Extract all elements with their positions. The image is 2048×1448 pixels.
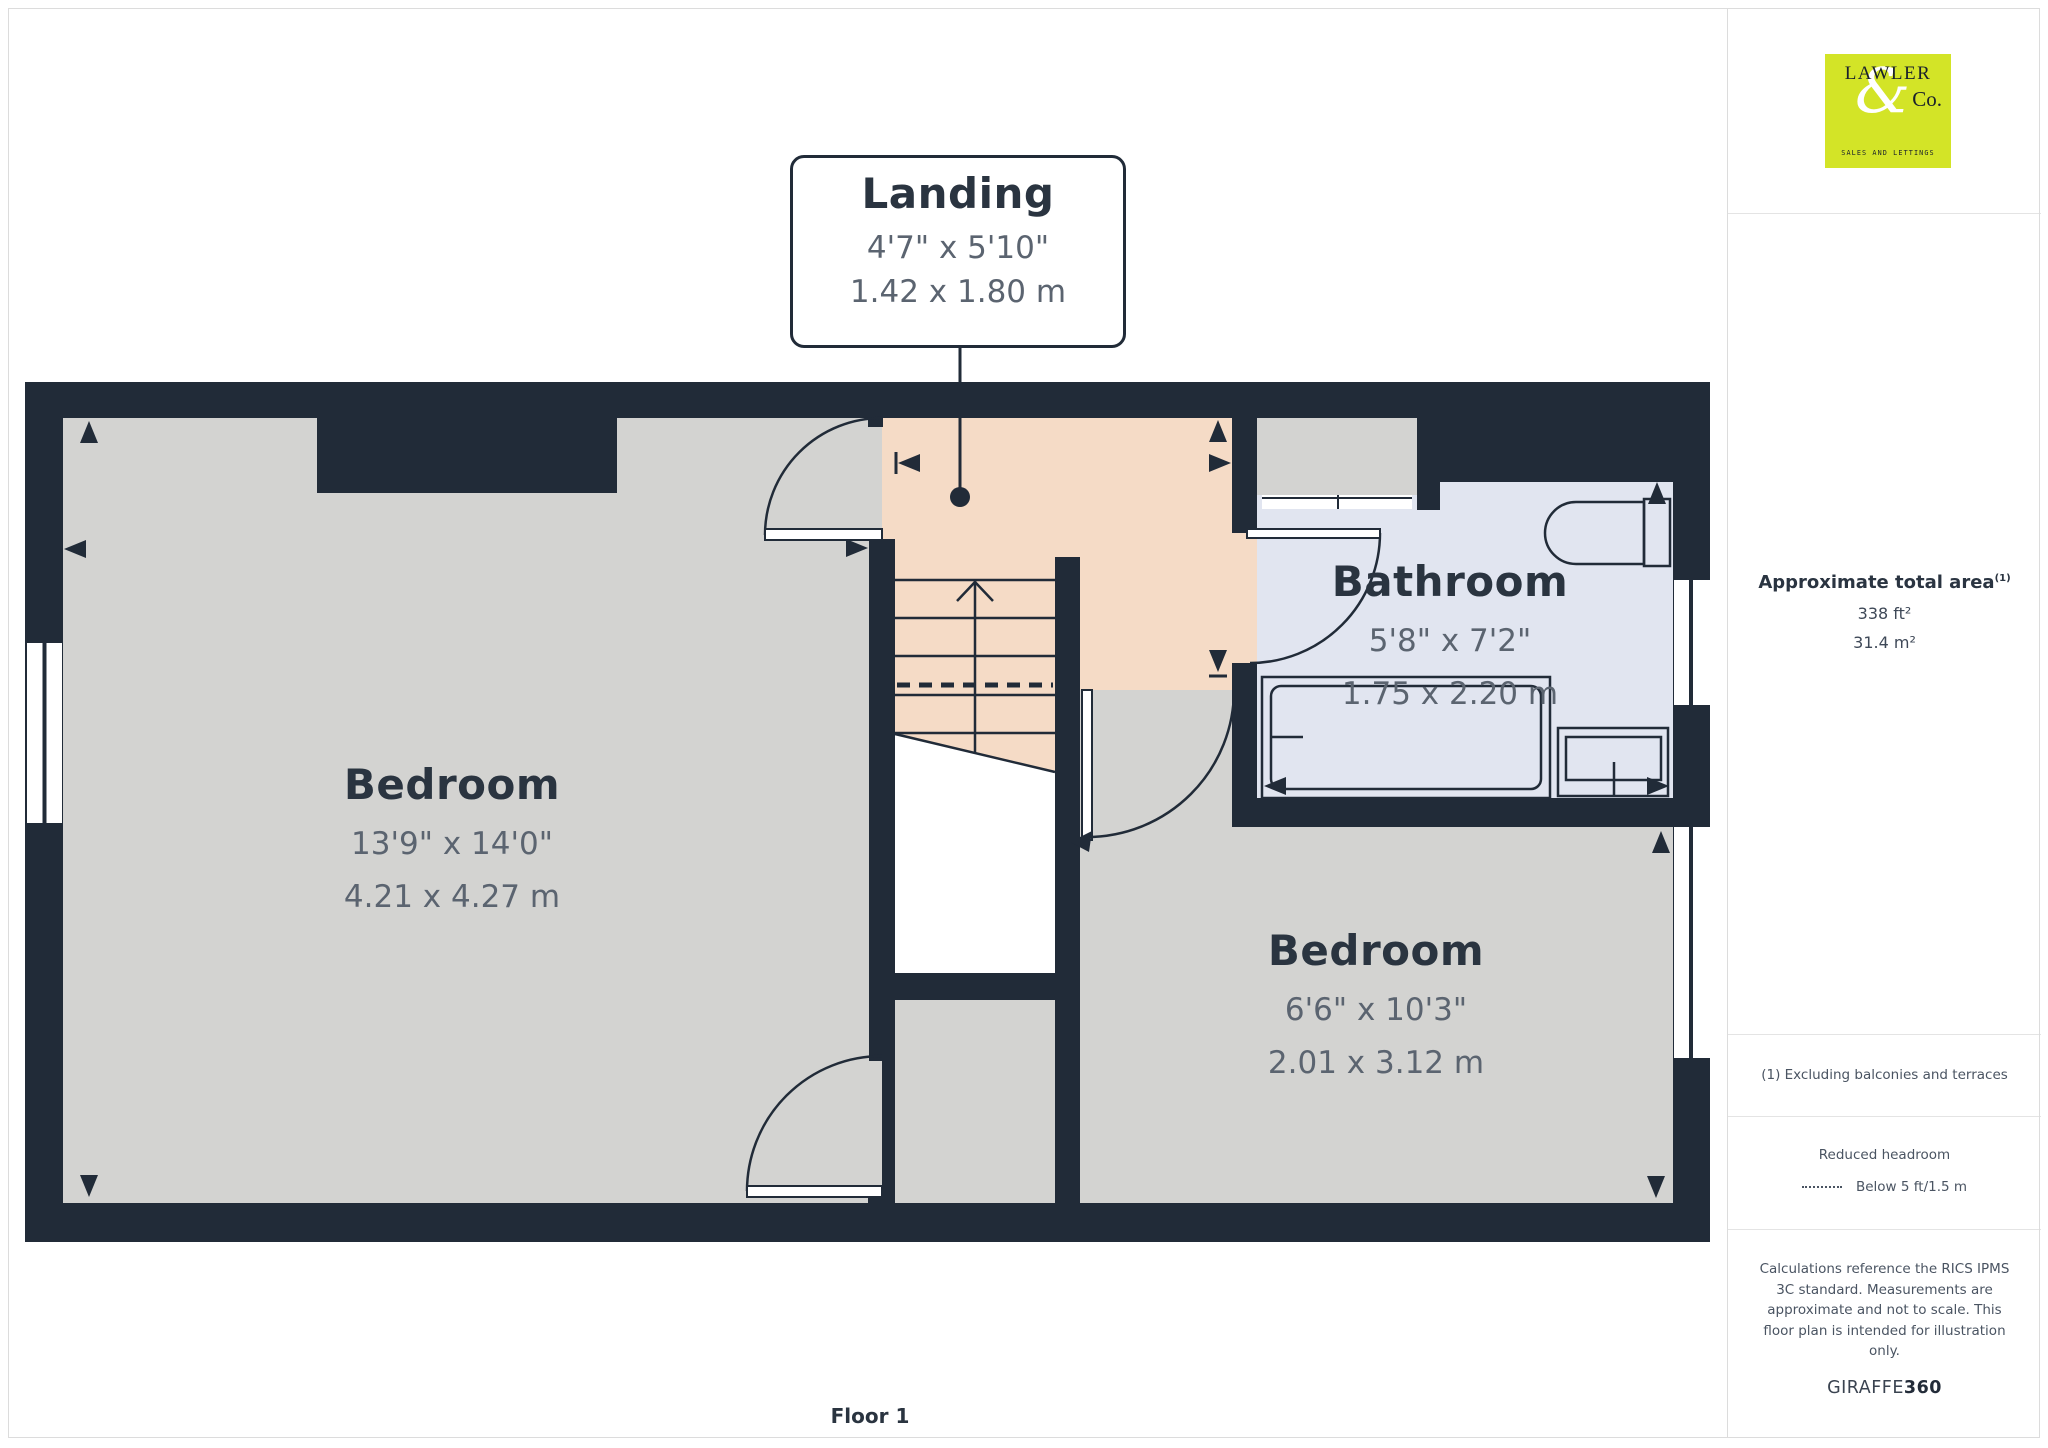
reduced-headroom-legend-row: Below 5 ft/1.5 m	[1728, 1179, 2041, 1195]
bathroom-step-wall	[1417, 418, 1440, 510]
sidebar-divider	[1728, 1116, 2041, 1117]
disclaimer-text: Calculations reference the RICS IPMS 3C …	[1757, 1259, 2012, 1362]
logo-line2: Co.	[1912, 87, 1942, 112]
area-title: Approximate total area(1)	[1728, 572, 2041, 593]
bedroom-1-name: Bedroom	[344, 762, 560, 808]
cupboard-recess	[1257, 418, 1417, 509]
bathroom-top-wall	[1440, 418, 1673, 482]
bathroom-name: Bathroom	[1332, 559, 1569, 605]
stair-right-wall	[1055, 557, 1080, 1203]
logo-line1: LAWLER	[1825, 63, 1951, 85]
bathroom-label: Bathroom 5'8" x 7'2" 1.75 x 2.20 m	[1332, 559, 1569, 711]
bedroom-1-bottom-door-leaf	[747, 1186, 882, 1197]
bedroom-1-landing-door-leaf	[765, 529, 882, 540]
bedroom-2-door-leaf	[1082, 690, 1092, 840]
giraffe360-brand: GIRAFFE	[1827, 1378, 1904, 1398]
agency-logo: & LAWLER Co. SALES AND LETTINGS	[1825, 54, 1951, 168]
bedroom-1-dim-metric: 4.21 x 4.27 m	[344, 880, 560, 914]
bedroom-1-recess-wall	[317, 418, 617, 493]
bathroom-bottom-wall	[1232, 798, 1710, 827]
area-title-superscript: (1)	[1995, 573, 2011, 584]
sidebar-divider	[1728, 213, 2041, 214]
bathroom-dim-imperial: 5'8" x 7'2"	[1332, 624, 1569, 658]
landing-dim-imperial: 4'7" x 5'10"	[793, 230, 1123, 266]
landing-dim-metric: 1.42 x 1.80 m	[793, 274, 1123, 310]
sidebar-divider	[1728, 1034, 2041, 1035]
reduced-headroom-legend: Below 5 ft/1.5 m	[1856, 1179, 1967, 1195]
area-imperial: 338 ft²	[1728, 604, 2041, 623]
cupboard-floor	[1257, 418, 1417, 495]
bedroom-1-label: Bedroom 13'9" x 14'0" 4.21 x 4.27 m	[344, 762, 560, 914]
stair-left-wall	[869, 539, 895, 1061]
giraffe360-credit: GIRAFFE360	[1728, 1378, 2041, 1398]
giraffe360-suffix: 360	[1904, 1378, 1942, 1398]
landing-callout: Landing 4'7" x 5'10" 1.42 x 1.80 m	[790, 155, 1126, 348]
stair-void	[895, 734, 1055, 973]
bathroom-dim-metric: 1.75 x 2.20 m	[1332, 677, 1569, 711]
floor-label: Floor 1	[831, 1404, 910, 1428]
floorplan-page: Landing 4'7" x 5'10" 1.42 x 1.80 m Bedro…	[0, 0, 2048, 1448]
stair-bottom-wall	[895, 973, 1055, 1000]
area-metric: 31.4 m²	[1728, 633, 2041, 652]
reduced-headroom-title: Reduced headroom	[1728, 1147, 2041, 1163]
landing-name: Landing	[793, 170, 1123, 218]
bathroom-left-wall-top	[1232, 418, 1257, 533]
inner-lobby-floor	[895, 1000, 1055, 1203]
excluding-note: (1) Excluding balconies and terraces	[1728, 1067, 2041, 1083]
leader-dot	[950, 487, 970, 507]
sidebar: & LAWLER Co. SALES AND LETTINGS Approxim…	[1727, 8, 2041, 1438]
bedroom-2-label: Bedroom 6'6" x 10'3" 2.01 x 3.12 m	[1268, 928, 1484, 1080]
reduced-headroom-dotted-line	[1802, 1186, 1842, 1188]
bedroom-1-dim-imperial: 13'9" x 14'0"	[344, 827, 560, 861]
sidebar-divider	[1728, 1229, 2041, 1230]
bedroom-2-dim-imperial: 6'6" x 10'3"	[1268, 993, 1484, 1027]
bathroom-door-leaf	[1247, 529, 1380, 538]
bathroom-left-wall-bottom	[1232, 663, 1257, 798]
logo-tagline: SALES AND LETTINGS	[1825, 149, 1951, 157]
bedroom-2-name: Bedroom	[1268, 928, 1484, 974]
bedroom-2-dim-metric: 2.01 x 3.12 m	[1268, 1046, 1484, 1080]
area-title-text: Approximate total area	[1758, 572, 1994, 593]
bathroom-doorway-gap	[1232, 533, 1257, 663]
